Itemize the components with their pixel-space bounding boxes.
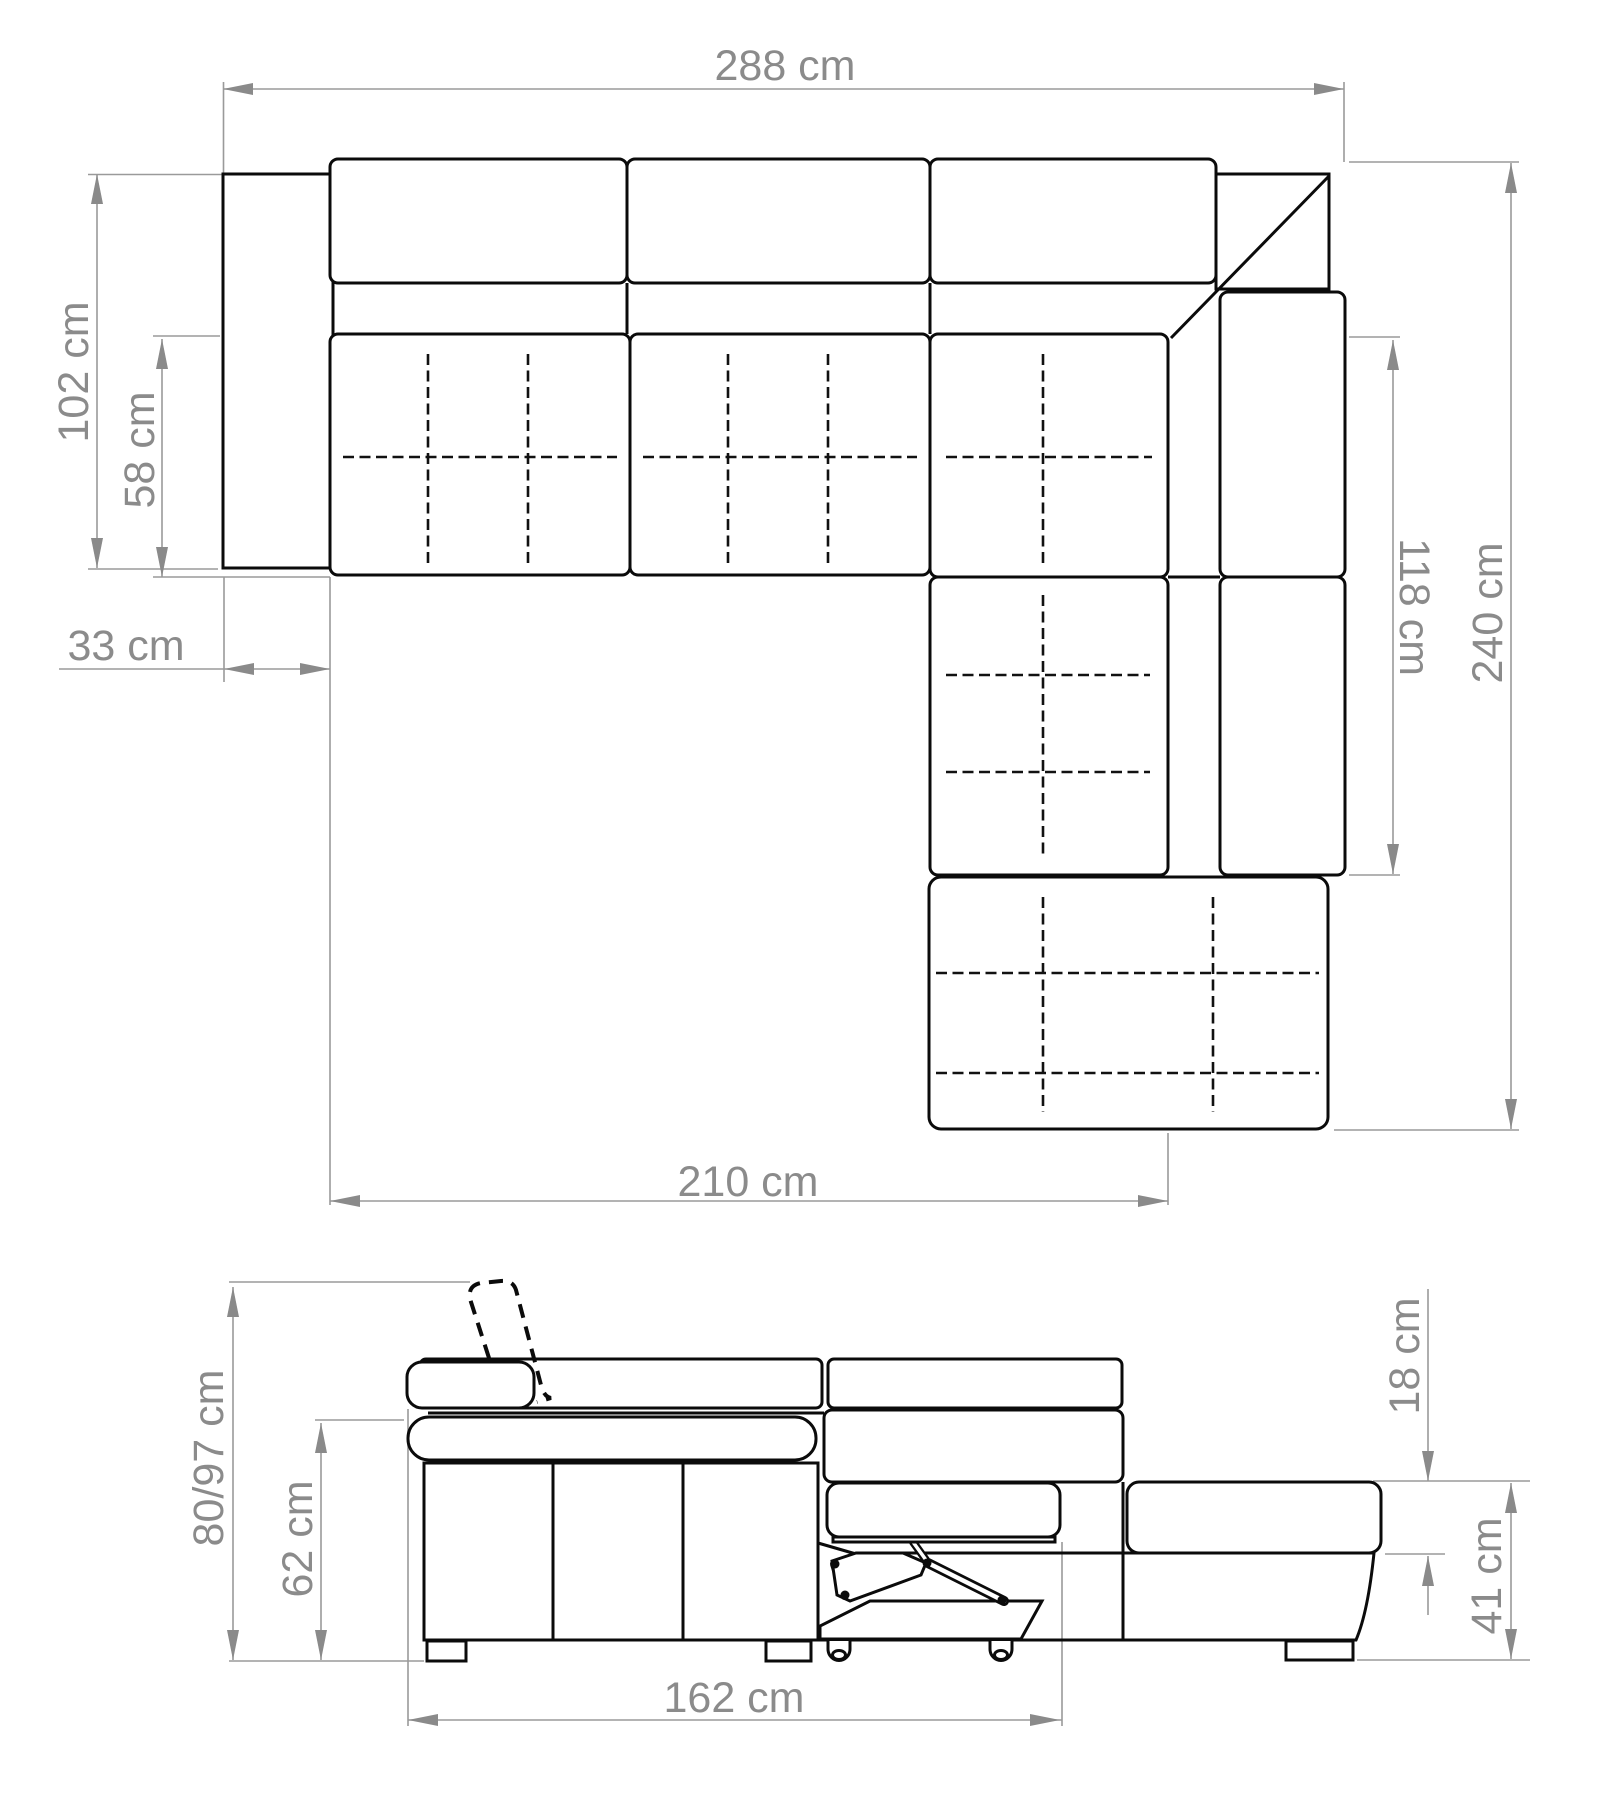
svg-text:62 cm: 62 cm	[274, 1480, 322, 1597]
svg-text:80/97 cm: 80/97 cm	[185, 1370, 233, 1547]
svg-text:41 cm: 41 cm	[1463, 1517, 1511, 1634]
svg-text:58 cm: 58 cm	[116, 391, 164, 508]
svg-text:288 cm: 288 cm	[714, 42, 855, 90]
svg-text:210 cm: 210 cm	[677, 1158, 818, 1206]
svg-text:18 cm: 18 cm	[1381, 1297, 1429, 1414]
svg-text:162 cm: 162 cm	[663, 1674, 804, 1722]
svg-text:102 cm: 102 cm	[50, 301, 98, 442]
svg-text:240 cm: 240 cm	[1464, 542, 1512, 683]
svg-text:118 cm: 118 cm	[1390, 538, 1438, 676]
svg-text:33 cm: 33 cm	[67, 622, 184, 670]
